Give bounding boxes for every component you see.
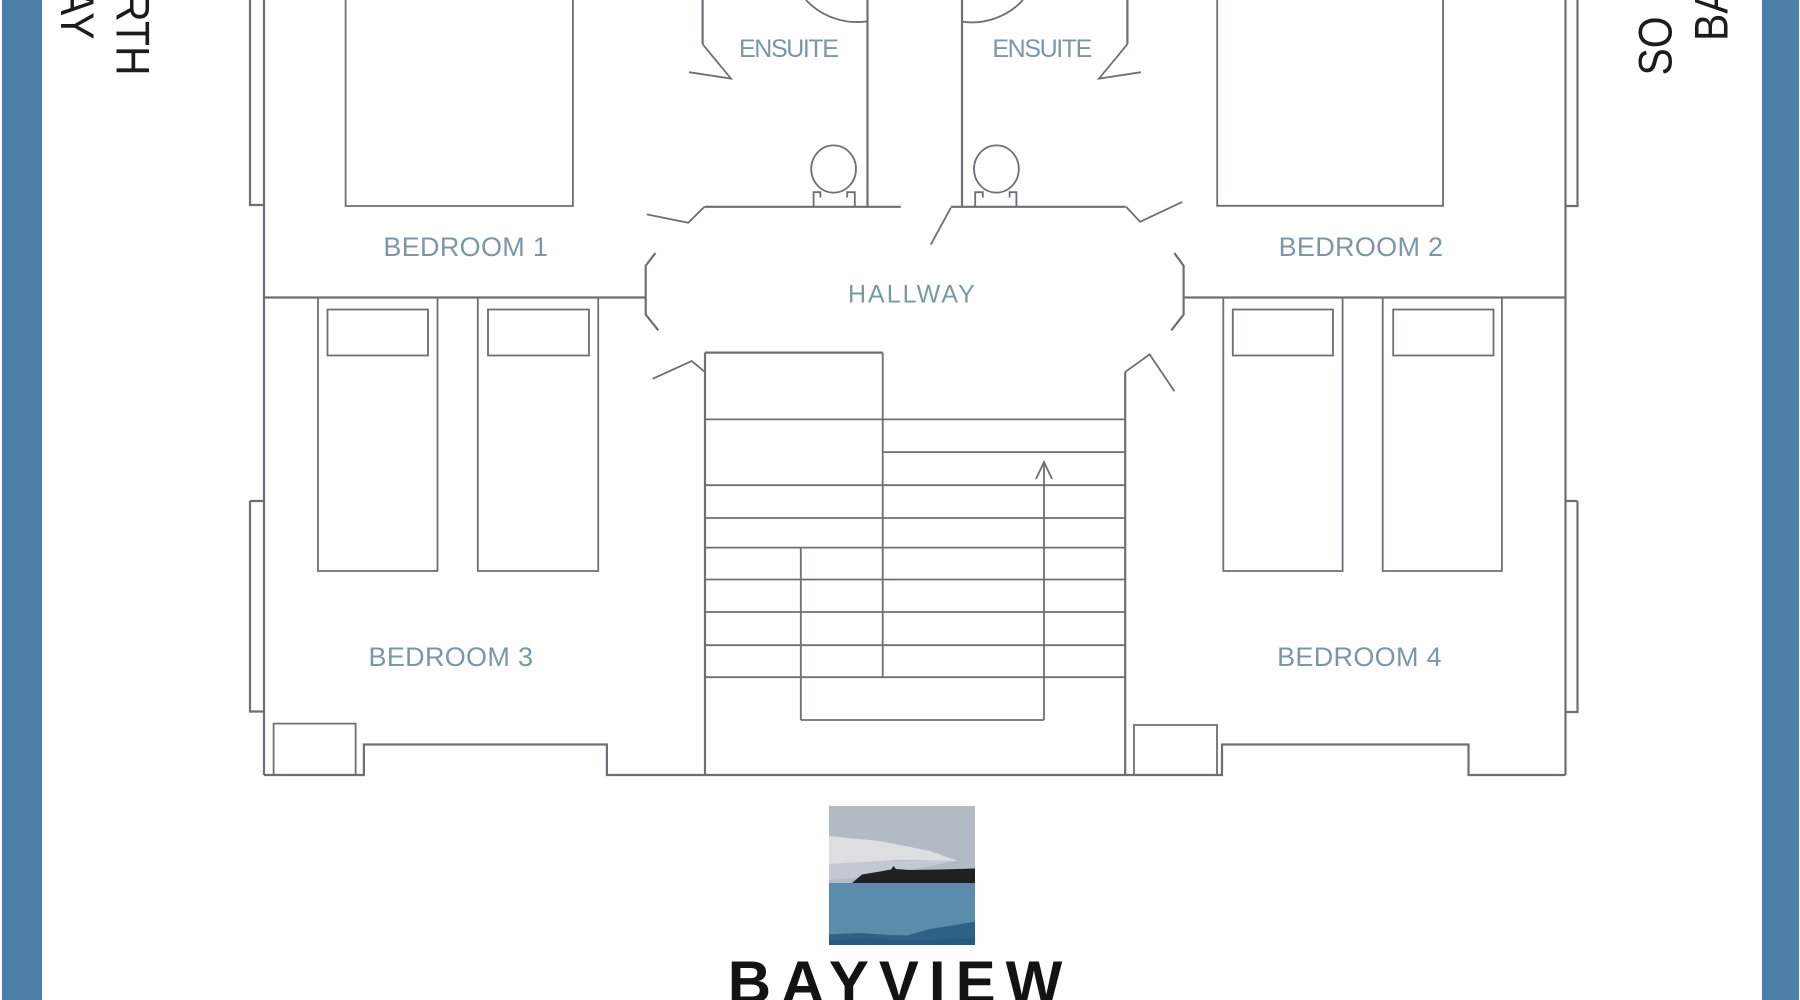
- svg-text:AY: AY: [50, 0, 102, 40]
- svg-text:BEDROOM 3: BEDROOM 3: [369, 642, 534, 672]
- svg-text:BAYVIEW: BAYVIEW: [728, 949, 1073, 1000]
- svg-text:SO: SO: [1630, 16, 1682, 75]
- svg-text:BEDROOM 2: BEDROOM 2: [1279, 232, 1444, 262]
- svg-text:ENSUITE: ENSUITE: [739, 35, 838, 63]
- svg-text:BEDROOM 4: BEDROOM 4: [1277, 642, 1442, 672]
- svg-text:HALLWAY: HALLWAY: [848, 281, 977, 309]
- svg-text:BA: BA: [1686, 0, 1738, 41]
- svg-text:ENSUITE: ENSUITE: [992, 35, 1091, 63]
- svg-text:RTH: RTH: [106, 0, 158, 76]
- svg-text:BEDROOM 1: BEDROOM 1: [383, 232, 548, 262]
